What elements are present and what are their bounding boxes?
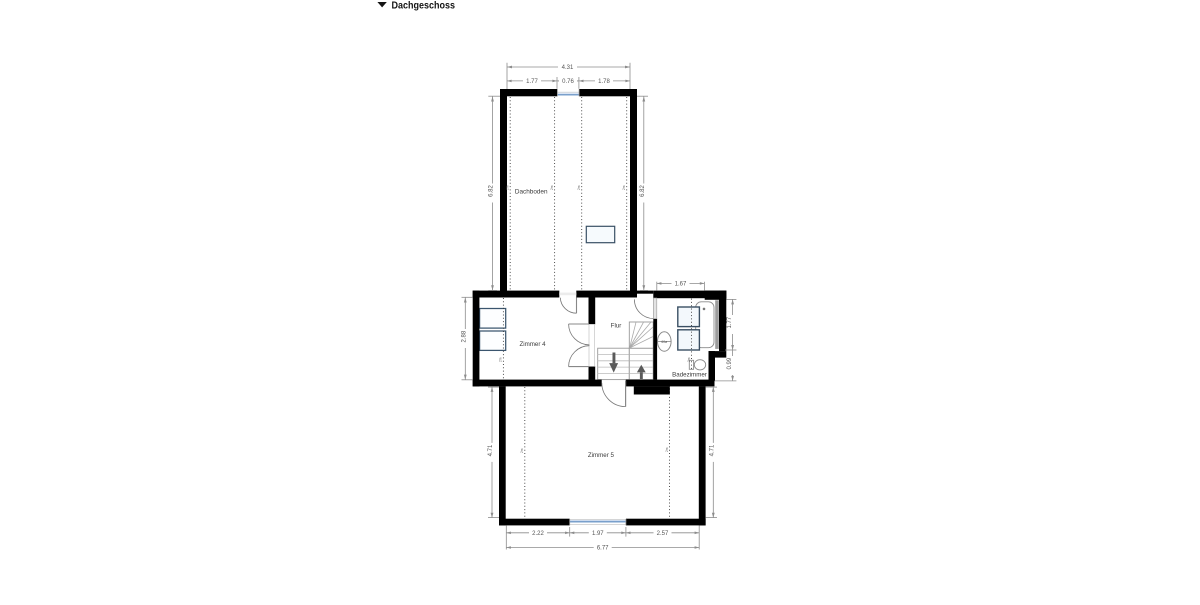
svg-text:Dachboden: Dachboden — [515, 188, 548, 195]
svg-text:0.99: 0.99 — [727, 357, 733, 369]
svg-text:2m: 2m — [687, 357, 691, 362]
svg-text:4.31: 4.31 — [562, 65, 574, 71]
svg-text:4.71: 4.71 — [709, 444, 715, 456]
svg-text:2m: 2m — [506, 185, 510, 190]
svg-text:2.22: 2.22 — [532, 531, 544, 537]
svg-text:4.71: 4.71 — [488, 444, 494, 456]
svg-text:2.57: 2.57 — [657, 531, 669, 537]
svg-text:1.67: 1.67 — [675, 282, 687, 288]
svg-text:2m: 2m — [499, 357, 503, 362]
svg-text:60ø: 60ø — [661, 340, 667, 344]
svg-text:Zimmer 4: Zimmer 4 — [519, 341, 546, 348]
svg-text:1.78: 1.78 — [598, 79, 610, 85]
svg-text:1.77: 1.77 — [526, 79, 538, 85]
svg-text:2m: 2m — [577, 185, 581, 190]
svg-text:0.76: 0.76 — [562, 79, 574, 85]
svg-text:2m: 2m — [520, 448, 524, 453]
svg-text:2m: 2m — [622, 185, 626, 190]
svg-text:2m: 2m — [665, 447, 669, 452]
svg-text:2.88: 2.88 — [461, 330, 467, 342]
svg-text:Badezimmer: Badezimmer — [672, 371, 707, 378]
svg-text:Dachgeschoss: Dachgeschoss — [392, 1, 456, 12]
svg-text:2m: 2m — [550, 185, 554, 190]
svg-text:6.77: 6.77 — [597, 546, 609, 552]
svg-text:Zimmer 5: Zimmer 5 — [588, 452, 615, 459]
svg-text:Flur: Flur — [611, 323, 622, 330]
svg-text:6.82: 6.82 — [640, 185, 646, 197]
svg-text:1.97: 1.97 — [592, 531, 604, 537]
svg-text:6.82: 6.82 — [489, 185, 495, 197]
svg-text:1.77: 1.77 — [727, 316, 733, 328]
